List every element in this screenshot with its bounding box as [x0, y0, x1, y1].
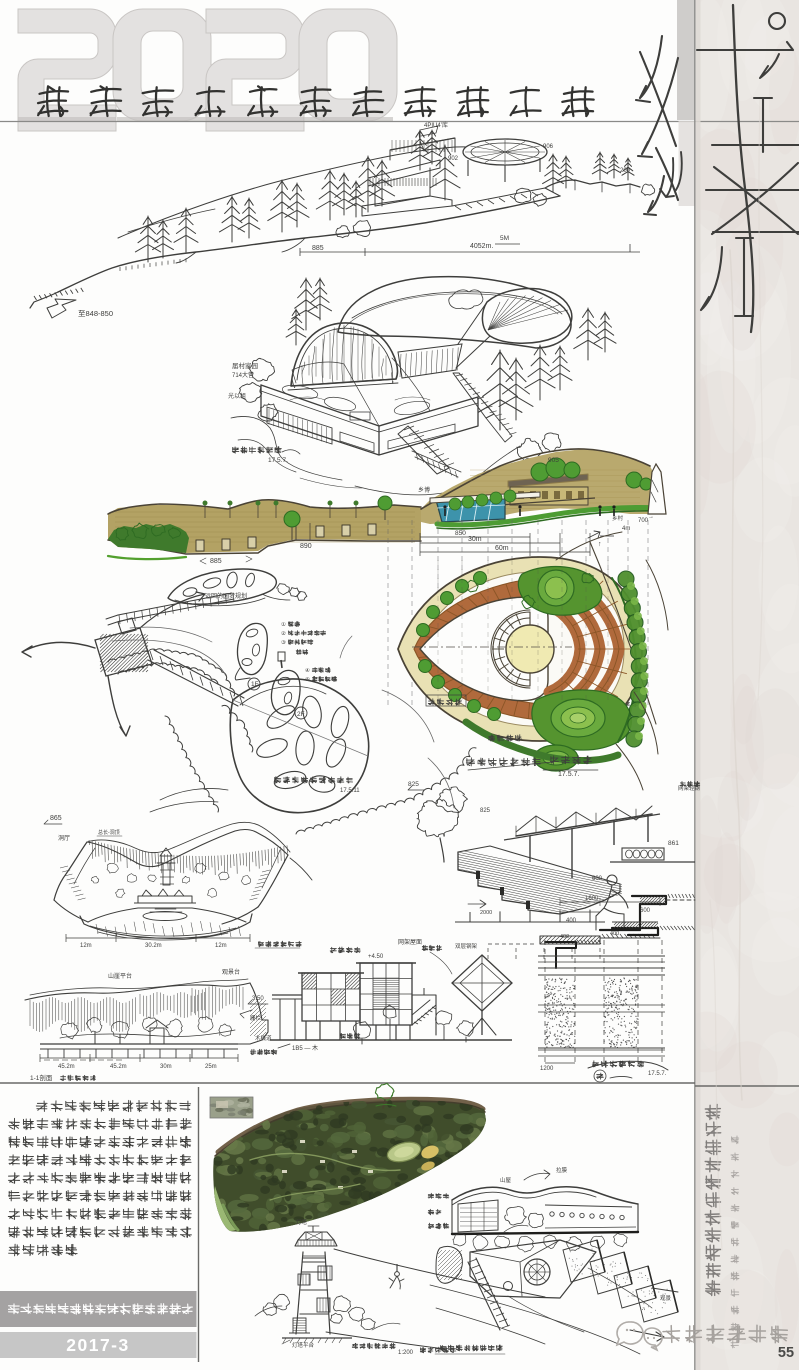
svg-text:③: ③ [281, 639, 286, 646]
svg-text:825: 825 [480, 808, 491, 814]
svg-text:600: 600 [640, 908, 651, 914]
svg-text:825: 825 [408, 781, 419, 788]
svg-text:④: ④ [305, 667, 310, 674]
svg-text:2F: 2F [297, 711, 305, 718]
svg-text:2000: 2000 [480, 910, 492, 916]
svg-text:600: 600 [592, 876, 603, 882]
svg-text:906: 906 [543, 144, 554, 150]
svg-text:总长-洞顶: 总长-洞顶 [98, 829, 120, 836]
svg-text:木栈道: 木栈道 [255, 1034, 272, 1042]
svg-text:17.5.11: 17.5.11 [340, 788, 360, 794]
svg-text:400: 400 [566, 918, 577, 924]
svg-text:↓: ↓ [428, 1348, 431, 1354]
svg-text:双层钢架: 双层钢架 [455, 942, 478, 950]
svg-text:⑤: ⑤ [305, 676, 310, 683]
svg-text:12m: 12m [80, 943, 92, 949]
svg-text:+4.50: +4.50 [368, 954, 384, 960]
svg-text:885: 885 [210, 558, 222, 565]
svg-text:865: 865 [50, 815, 62, 822]
svg-text:17.5.7.: 17.5.7. [268, 457, 288, 464]
svg-text:30m: 30m [468, 536, 482, 543]
svg-text:1F: 1F [251, 681, 259, 688]
svg-text:①: ① [281, 621, 286, 628]
svg-text:1200: 1200 [540, 1066, 554, 1072]
svg-text:400: 400 [610, 931, 619, 937]
svg-text:洞厅: 洞厅 [58, 834, 70, 842]
svg-text:4PIU4’库: 4PIU4’库 [424, 121, 448, 129]
svg-text:890: 890 [300, 543, 312, 550]
svg-text:观景: 观景 [660, 1295, 672, 1302]
svg-text:山屋: 山屋 [500, 1176, 512, 1184]
svg-text:灯塔平台: 灯塔平台 [292, 1341, 315, 1349]
svg-text:4m: 4m [622, 526, 630, 532]
svg-text:山崖平台: 山崖平台 [108, 972, 132, 980]
svg-text:光以组: 光以组 [228, 392, 246, 400]
svg-text:1:200: 1:200 [398, 1350, 414, 1356]
svg-text:850: 850 [455, 530, 466, 537]
svg-text:3.50: 3.50 [252, 996, 264, 1002]
svg-text:1B5 — 木: 1B5 — 木 [292, 1044, 318, 1052]
svg-text:②: ② [281, 630, 286, 637]
svg-text:55: 55 [778, 1345, 794, 1361]
svg-text:灯塔: 灯塔 [296, 1218, 308, 1226]
svg-text:17.5.7.: 17.5.7. [558, 771, 579, 778]
svg-text:17.5.7.: 17.5.7. [648, 1071, 667, 1077]
svg-text:30m: 30m [160, 1064, 172, 1070]
svg-text:400: 400 [560, 934, 569, 940]
svg-text:5M: 5M [500, 235, 509, 242]
svg-text:1-1剖面: 1-1剖面 [30, 1073, 53, 1082]
svg-text:885: 885 [312, 245, 324, 252]
svg-text:45.2m: 45.2m [58, 1064, 75, 1070]
svg-text:902: 902 [448, 156, 459, 162]
svg-text:乡村: 乡村 [612, 514, 624, 522]
svg-text:2017-3: 2017-3 [66, 1335, 130, 1355]
svg-text:至848-850: 至848-850 [78, 309, 113, 318]
svg-text:乡博: 乡博 [418, 486, 430, 494]
svg-text:1600: 1600 [585, 896, 599, 902]
svg-text:届村家园: 届村家园 [232, 361, 258, 370]
svg-text:4052m.: 4052m. [470, 243, 493, 250]
svg-text:拉膜: 拉膜 [556, 1166, 568, 1174]
svg-text:→: → [648, 514, 654, 520]
svg-text:栅栏: 栅栏 [250, 1014, 262, 1022]
svg-text:45.2m: 45.2m [110, 1064, 127, 1070]
svg-text:25m: 25m [205, 1064, 217, 1070]
svg-text:网架屋面: 网架屋面 [398, 938, 422, 946]
svg-text:30.2m: 30.2m [145, 943, 162, 949]
svg-text:905: 905 [548, 457, 559, 464]
svg-text:60m: 60m [495, 545, 509, 552]
svg-text:861: 861 [668, 840, 679, 847]
svg-text:200: 200 [620, 168, 631, 174]
svg-text:远回的园梦规划: 远回的园梦规划 [205, 592, 247, 600]
svg-text:观景台: 观景台 [222, 968, 240, 976]
svg-text:↑: ↑ [598, 541, 602, 548]
svg-text:12m: 12m [215, 943, 227, 949]
svg-text:714大营: 714大营 [232, 371, 254, 379]
